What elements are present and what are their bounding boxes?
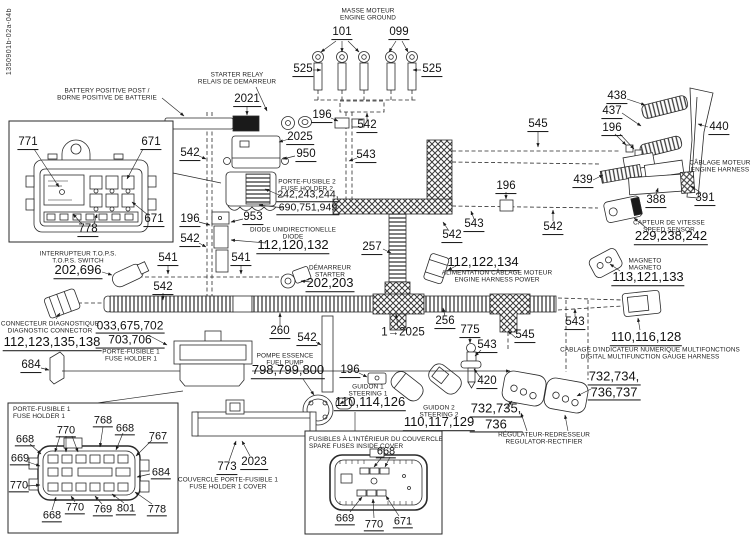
inset-spare-fuses <box>305 431 442 534</box>
engine-ground-terminals <box>313 52 418 91</box>
fuse-holder-cover <box>192 400 316 436</box>
ground-bolt <box>461 344 481 389</box>
starter-relay <box>165 116 364 131</box>
fuse-holder-1-main <box>174 331 252 386</box>
holder-bracket-684 <box>50 352 64 384</box>
harness-artwork <box>0 0 756 535</box>
diagnostic-connector <box>44 288 81 319</box>
wiring-diagram-page: 1350901b-02a-04b 10109952552520211965422… <box>0 0 756 535</box>
inset-fuse-holder-top <box>8 403 178 533</box>
inset-fuse-holder-front <box>9 121 173 242</box>
gauge-harness-connector <box>622 290 661 317</box>
speed-sensor-connector <box>603 195 643 223</box>
fuse-holder-2 <box>224 136 289 211</box>
steering1-connector <box>336 373 386 409</box>
magneto-connector <box>587 247 623 280</box>
engine-harness-assembly <box>500 88 713 211</box>
regulator-connectors <box>501 370 590 415</box>
tops-switch-connector <box>110 260 150 289</box>
starter-connector <box>281 266 311 288</box>
steering2-connectors <box>388 361 465 405</box>
diode-assembly <box>212 212 229 272</box>
engine-power-connector <box>423 253 449 285</box>
